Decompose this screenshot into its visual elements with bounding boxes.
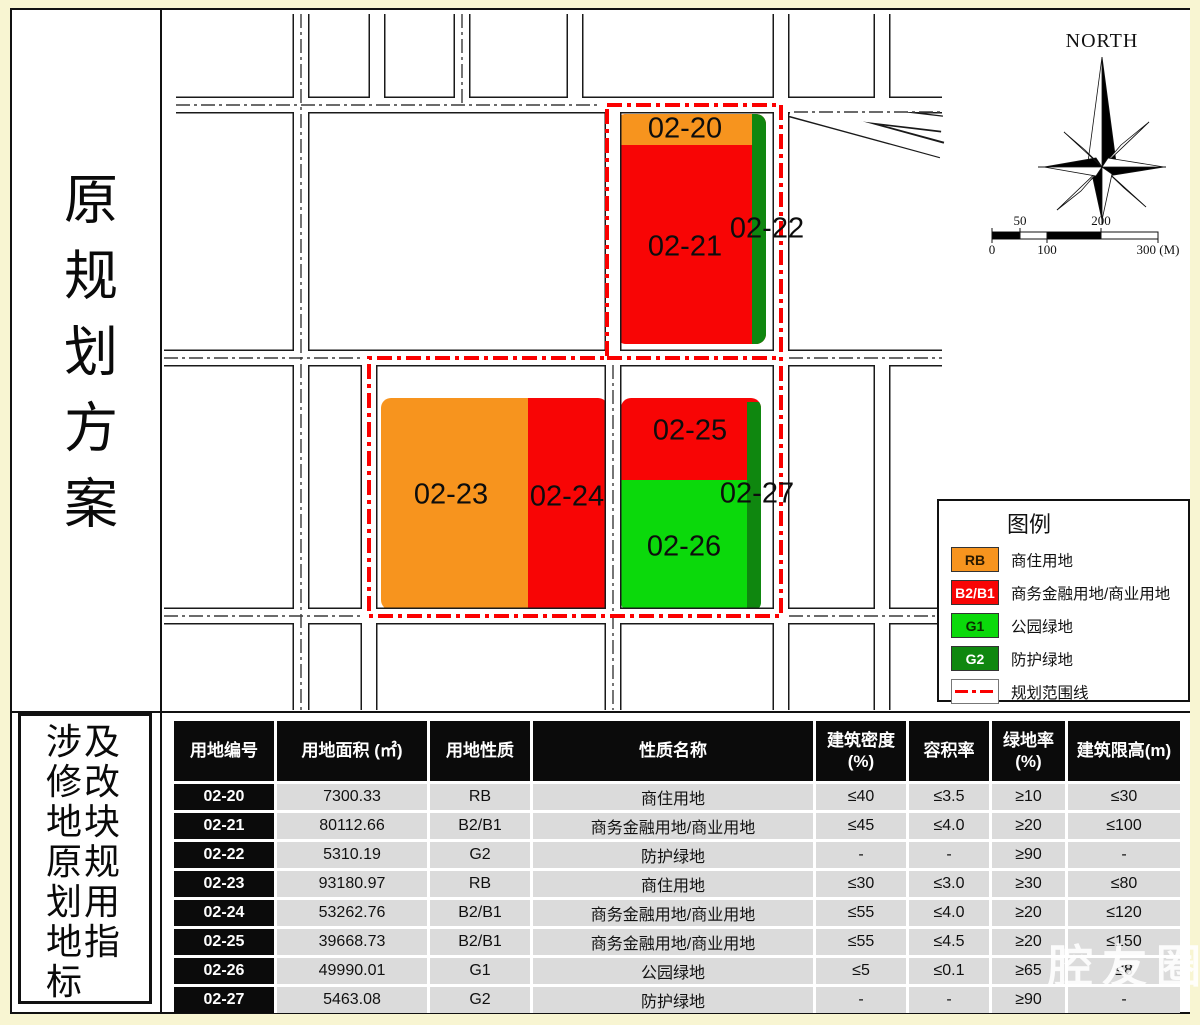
table-cell: RB bbox=[430, 784, 530, 810]
table-cell: ≤30 bbox=[1068, 784, 1180, 810]
table-cell: 防护绿地 bbox=[533, 987, 813, 1013]
table-row-id-cell: 02-23 bbox=[174, 871, 274, 897]
table-cell: ≥30 bbox=[992, 871, 1065, 897]
legend-item-B2/B1: B2/B1商务金融用地/商业用地 bbox=[951, 576, 1188, 609]
table-header-cell: 建筑限高(m) bbox=[1068, 721, 1180, 781]
table-header-cell: 建筑密度 (%) bbox=[816, 721, 906, 781]
table-cell: 93180.97 bbox=[277, 871, 427, 897]
table-cell: ≤0.1 bbox=[909, 958, 989, 984]
table-cell: 49990.01 bbox=[277, 958, 427, 984]
legend-items: RB商住用地B2/B1商务金融用地/商业用地G1公园绿地G2防护绿地规划范围线 bbox=[951, 543, 1188, 708]
table-cell: ≤30 bbox=[816, 871, 906, 897]
table-cell: 5310.19 bbox=[277, 842, 427, 868]
page-title: 原规划方案 bbox=[47, 171, 126, 551]
table-cell: ≥20 bbox=[992, 900, 1065, 926]
table-cell: B2/B1 bbox=[430, 929, 530, 955]
table-cell: B2/B1 bbox=[430, 900, 530, 926]
legend-item-boundary: 规划范围线 bbox=[951, 675, 1188, 708]
table-header-cell: 用地性质 bbox=[430, 721, 530, 781]
legend-box: 图例 RB商住用地B2/B1商务金融用地/商业用地G1公园绿地G2防护绿地规划范… bbox=[937, 499, 1190, 702]
table-cell: 商务金融用地/商业用地 bbox=[533, 813, 813, 839]
legend-title: 图例 bbox=[951, 507, 1188, 539]
table-cell: 商务金融用地/商业用地 bbox=[533, 900, 813, 926]
north-arrow bbox=[1038, 57, 1166, 225]
table-cell: ≥90 bbox=[992, 842, 1065, 868]
parcel-label-02-27: 02-27 bbox=[720, 478, 794, 511]
parcel-label-02-23: 02-23 bbox=[414, 479, 488, 512]
table-cell: 商务金融用地/商业用地 bbox=[533, 929, 813, 955]
table-cell: - bbox=[909, 842, 989, 868]
watermark: 腔友圈 bbox=[1048, 930, 1200, 995]
legend-label: 商务金融用地/商业用地 bbox=[1011, 582, 1170, 604]
table-cell: ≥10 bbox=[992, 784, 1065, 810]
table-cell: ≤55 bbox=[816, 929, 906, 955]
parcel-label-02-26: 02-26 bbox=[647, 531, 721, 564]
indicator-table-panel: 用地编号用地面积 (㎡)用地性质性质名称建筑密度 (%)容积率绿地率 (%)建筑… bbox=[164, 713, 1190, 1012]
scale-mark: 0 bbox=[989, 242, 996, 258]
table-cell: ≤3.0 bbox=[909, 871, 989, 897]
table-header-cell: 绿地率 (%) bbox=[992, 721, 1065, 781]
table-cell: ≤3.5 bbox=[909, 784, 989, 810]
legend-label: 商住用地 bbox=[1011, 549, 1073, 571]
table-cell: RB bbox=[430, 871, 530, 897]
legend-item-G1: G1公园绿地 bbox=[951, 609, 1188, 642]
panel-divider bbox=[12, 711, 1188, 713]
table-header-cell: 用地编号 bbox=[174, 721, 274, 781]
parcel-label-02-24: 02-24 bbox=[530, 481, 604, 514]
parcel-label-02-25: 02-25 bbox=[653, 415, 727, 448]
legend-swatch-boundary bbox=[951, 679, 999, 704]
table-cell: ≤4.0 bbox=[909, 900, 989, 926]
table-cell: ≤4.5 bbox=[909, 929, 989, 955]
legend-label: 规划范围线 bbox=[1011, 681, 1089, 703]
table-cell: 公园绿地 bbox=[533, 958, 813, 984]
legend-label: 公园绿地 bbox=[1011, 615, 1073, 637]
scale-bar bbox=[992, 228, 1158, 243]
table-cell: - bbox=[1068, 842, 1180, 868]
table-cell: - bbox=[816, 987, 906, 1013]
legend-swatch-G2: G2 bbox=[951, 646, 999, 671]
table-row-id-cell: 02-20 bbox=[174, 784, 274, 810]
legend-swatch-B2/B1: B2/B1 bbox=[951, 580, 999, 605]
table-header-cell: 性质名称 bbox=[533, 721, 813, 781]
scale-mark: 200 bbox=[1091, 213, 1111, 229]
table-cell: ≤80 bbox=[1068, 871, 1180, 897]
table-cell: 商住用地 bbox=[533, 784, 813, 810]
table-cell: ≤40 bbox=[816, 784, 906, 810]
table-cell: G2 bbox=[430, 987, 530, 1013]
table-cell: G1 bbox=[430, 958, 530, 984]
table-row-id-cell: 02-26 bbox=[174, 958, 274, 984]
table-cell: 80112.66 bbox=[277, 813, 427, 839]
scale-mark: 300 (M) bbox=[1137, 242, 1180, 258]
table-cell: ≤120 bbox=[1068, 900, 1180, 926]
table-row-id-cell: 02-25 bbox=[174, 929, 274, 955]
table-cell: 7300.33 bbox=[277, 784, 427, 810]
north-label: NORTH bbox=[1066, 30, 1139, 53]
legend-item-RB: RB商住用地 bbox=[951, 543, 1188, 576]
table-cell: G2 bbox=[430, 842, 530, 868]
boundary-line-sample bbox=[955, 690, 995, 693]
table-row-id-cell: 02-22 bbox=[174, 842, 274, 868]
parcel-label-02-20: 02-20 bbox=[648, 113, 722, 146]
table-header-cell: 用地面积 (㎡) bbox=[277, 721, 427, 781]
table-cell: ≤5 bbox=[816, 958, 906, 984]
table-row-id-cell: 02-21 bbox=[174, 813, 274, 839]
scale-mark: 50 bbox=[1014, 213, 1027, 229]
document-frame: 原规划方案 涉及修改地块原规划用地指标 bbox=[10, 8, 1190, 1014]
table-cell: ≤45 bbox=[816, 813, 906, 839]
table-cell: ≤4.0 bbox=[909, 813, 989, 839]
left-title-panel: 原规划方案 bbox=[12, 10, 162, 711]
parcel-label-02-21: 02-21 bbox=[648, 231, 722, 264]
table-cell: 商住用地 bbox=[533, 871, 813, 897]
table-title-panel: 涉及修改地块原规划用地指标 bbox=[12, 713, 162, 1012]
table-header-cell: 容积率 bbox=[909, 721, 989, 781]
table-cell: ≤100 bbox=[1068, 813, 1180, 839]
table-title: 涉及修改地块原规划用地指标 bbox=[46, 722, 124, 1001]
table-cell: 39668.73 bbox=[277, 929, 427, 955]
table-cell: 5463.08 bbox=[277, 987, 427, 1013]
table-cell: - bbox=[909, 987, 989, 1013]
table-cell: 53262.76 bbox=[277, 900, 427, 926]
table-cell: 防护绿地 bbox=[533, 842, 813, 868]
legend-swatch-G1: G1 bbox=[951, 613, 999, 638]
legend-item-G2: G2防护绿地 bbox=[951, 642, 1188, 675]
table-cell: ≤55 bbox=[816, 900, 906, 926]
indicator-table: 用地编号用地面积 (㎡)用地性质性质名称建筑密度 (%)容积率绿地率 (%)建筑… bbox=[174, 721, 1180, 1013]
table-cell: B2/B1 bbox=[430, 813, 530, 839]
legend-label: 防护绿地 bbox=[1011, 648, 1073, 670]
legend-swatch-RB: RB bbox=[951, 547, 999, 572]
table-cell: - bbox=[816, 842, 906, 868]
table-row-id-cell: 02-27 bbox=[174, 987, 274, 1013]
table-cell: ≥20 bbox=[992, 813, 1065, 839]
table-row-id-cell: 02-24 bbox=[174, 900, 274, 926]
parcel-label-02-22: 02-22 bbox=[730, 213, 804, 246]
map-panel: NORTH 502000100300 (M) 02-2002-2102-2202… bbox=[164, 10, 1190, 711]
scale-mark: 100 bbox=[1037, 242, 1057, 258]
table-title-box: 涉及修改地块原规划用地指标 bbox=[18, 713, 152, 1004]
